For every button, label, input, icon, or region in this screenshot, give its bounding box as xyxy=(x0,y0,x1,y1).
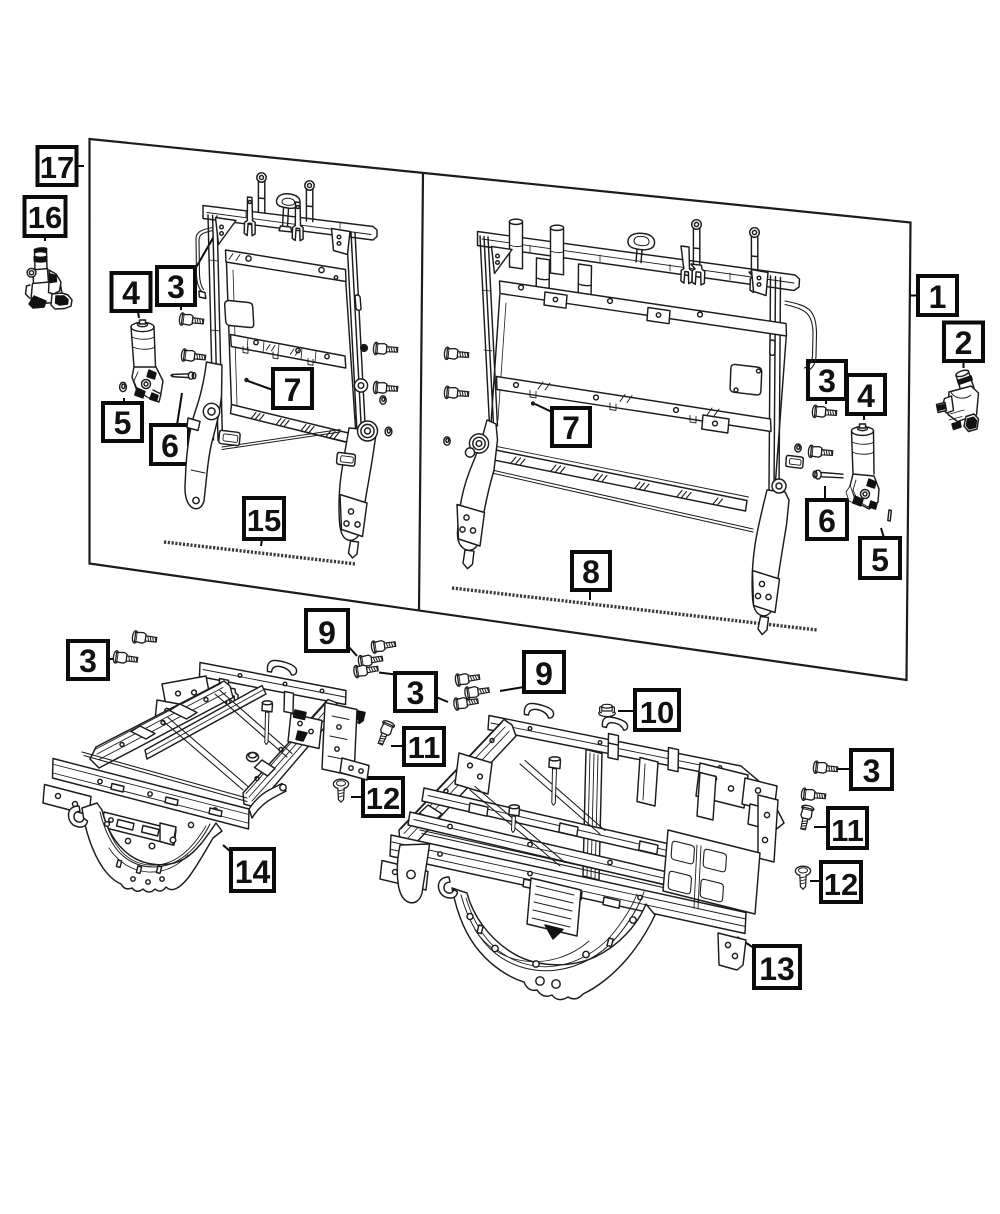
svg-text:3: 3 xyxy=(818,363,836,399)
svg-text:16: 16 xyxy=(28,200,62,235)
svg-text:7: 7 xyxy=(284,372,302,408)
svg-text:13: 13 xyxy=(759,951,795,987)
svg-text:15: 15 xyxy=(247,503,281,538)
svg-text:3: 3 xyxy=(79,643,97,679)
svg-text:17: 17 xyxy=(40,150,74,185)
svg-text:1: 1 xyxy=(929,279,947,315)
svg-text:12: 12 xyxy=(824,867,858,902)
svg-text:12: 12 xyxy=(366,781,400,816)
svg-text:10: 10 xyxy=(640,695,674,730)
svg-text:3: 3 xyxy=(167,269,185,305)
svg-text:9: 9 xyxy=(318,615,336,651)
svg-text:14: 14 xyxy=(235,854,271,890)
svg-text:11: 11 xyxy=(831,813,864,848)
svg-text:9: 9 xyxy=(535,656,553,692)
svg-text:3: 3 xyxy=(863,753,881,789)
svg-text:4: 4 xyxy=(857,378,875,414)
svg-text:5: 5 xyxy=(114,405,132,441)
svg-text:2: 2 xyxy=(955,325,973,361)
svg-text:11: 11 xyxy=(408,730,441,765)
svg-text:8: 8 xyxy=(582,554,600,590)
svg-text:6: 6 xyxy=(161,428,179,464)
svg-text:5: 5 xyxy=(871,542,889,578)
svg-text:7: 7 xyxy=(562,410,580,446)
svg-text:3: 3 xyxy=(407,675,425,711)
svg-text:4: 4 xyxy=(122,275,140,311)
svg-text:6: 6 xyxy=(818,503,836,539)
